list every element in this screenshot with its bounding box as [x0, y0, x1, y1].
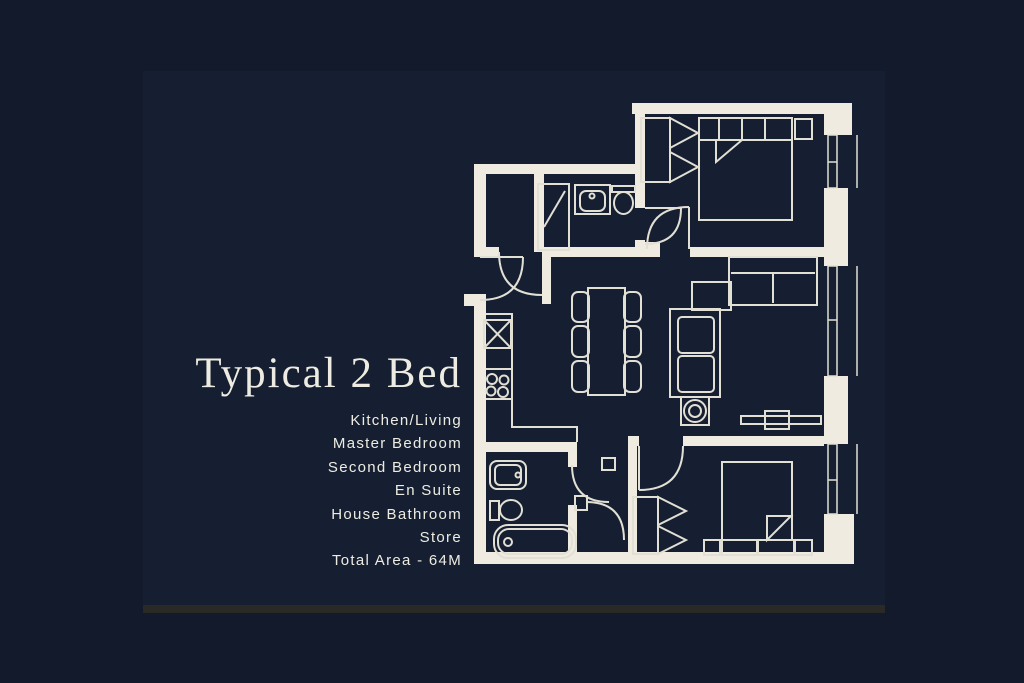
- bathroom-door: [572, 458, 624, 540]
- window-master-bedroom: [828, 135, 857, 188]
- living-room-furniture: [670, 257, 821, 429]
- second-bedroom-door: [639, 446, 683, 490]
- list-item-house-bathroom: House Bathroom: [160, 503, 462, 526]
- washing-machine-icon: [484, 320, 511, 348]
- tv-unit-icon: [741, 411, 821, 429]
- bathtub-icon: [494, 525, 576, 558]
- entrance-door: [480, 257, 523, 300]
- master-bed-icon: [699, 118, 792, 220]
- walls: [464, 103, 854, 564]
- list-item-kitchen-living: Kitchen/Living: [160, 409, 462, 432]
- list-item-master-bedroom: Master Bedroom: [160, 432, 462, 455]
- window-second-bedroom: [828, 444, 857, 514]
- ensuite-sink-icon: [575, 185, 610, 214]
- second-bed-icon: [704, 462, 812, 555]
- console-table-icon: [692, 282, 731, 310]
- floorplan-drawing: [460, 95, 862, 577]
- second-wardrobe-icon: [633, 497, 686, 554]
- room-list: Kitchen/Living Master Bedroom Second Bed…: [160, 409, 462, 573]
- list-item-store: Store: [160, 526, 462, 549]
- side-table-lamp-icon: [681, 397, 709, 425]
- list-item-en-suite: En Suite: [160, 479, 462, 502]
- hob-icon: [486, 369, 512, 399]
- list-item-second-bedroom: Second Bedroom: [160, 456, 462, 479]
- second-bedroom-furniture: [633, 462, 812, 555]
- bathroom-sink-icon: [490, 461, 526, 489]
- bathroom-toilet-icon: [490, 500, 522, 520]
- kitchen-fixtures: [484, 314, 577, 442]
- en-suite-fixtures: [538, 184, 635, 250]
- bathroom-fixtures: [490, 461, 576, 558]
- window-living-room: [828, 266, 857, 376]
- sofa-icon: [729, 257, 817, 305]
- ensuite-toilet-icon: [612, 186, 635, 214]
- master-wardrobe-icon: [641, 118, 698, 182]
- list-item-total-area: Total Area - 64M: [160, 549, 462, 572]
- dining-set-icon: [572, 288, 641, 395]
- page-title: Typical 2 Bed: [120, 352, 462, 396]
- master-bedroom-furniture: [641, 118, 812, 220]
- armchair-icon: [670, 309, 720, 397]
- master-bedside-table-icon: [795, 119, 812, 139]
- panel-bottom-edge: [143, 605, 885, 613]
